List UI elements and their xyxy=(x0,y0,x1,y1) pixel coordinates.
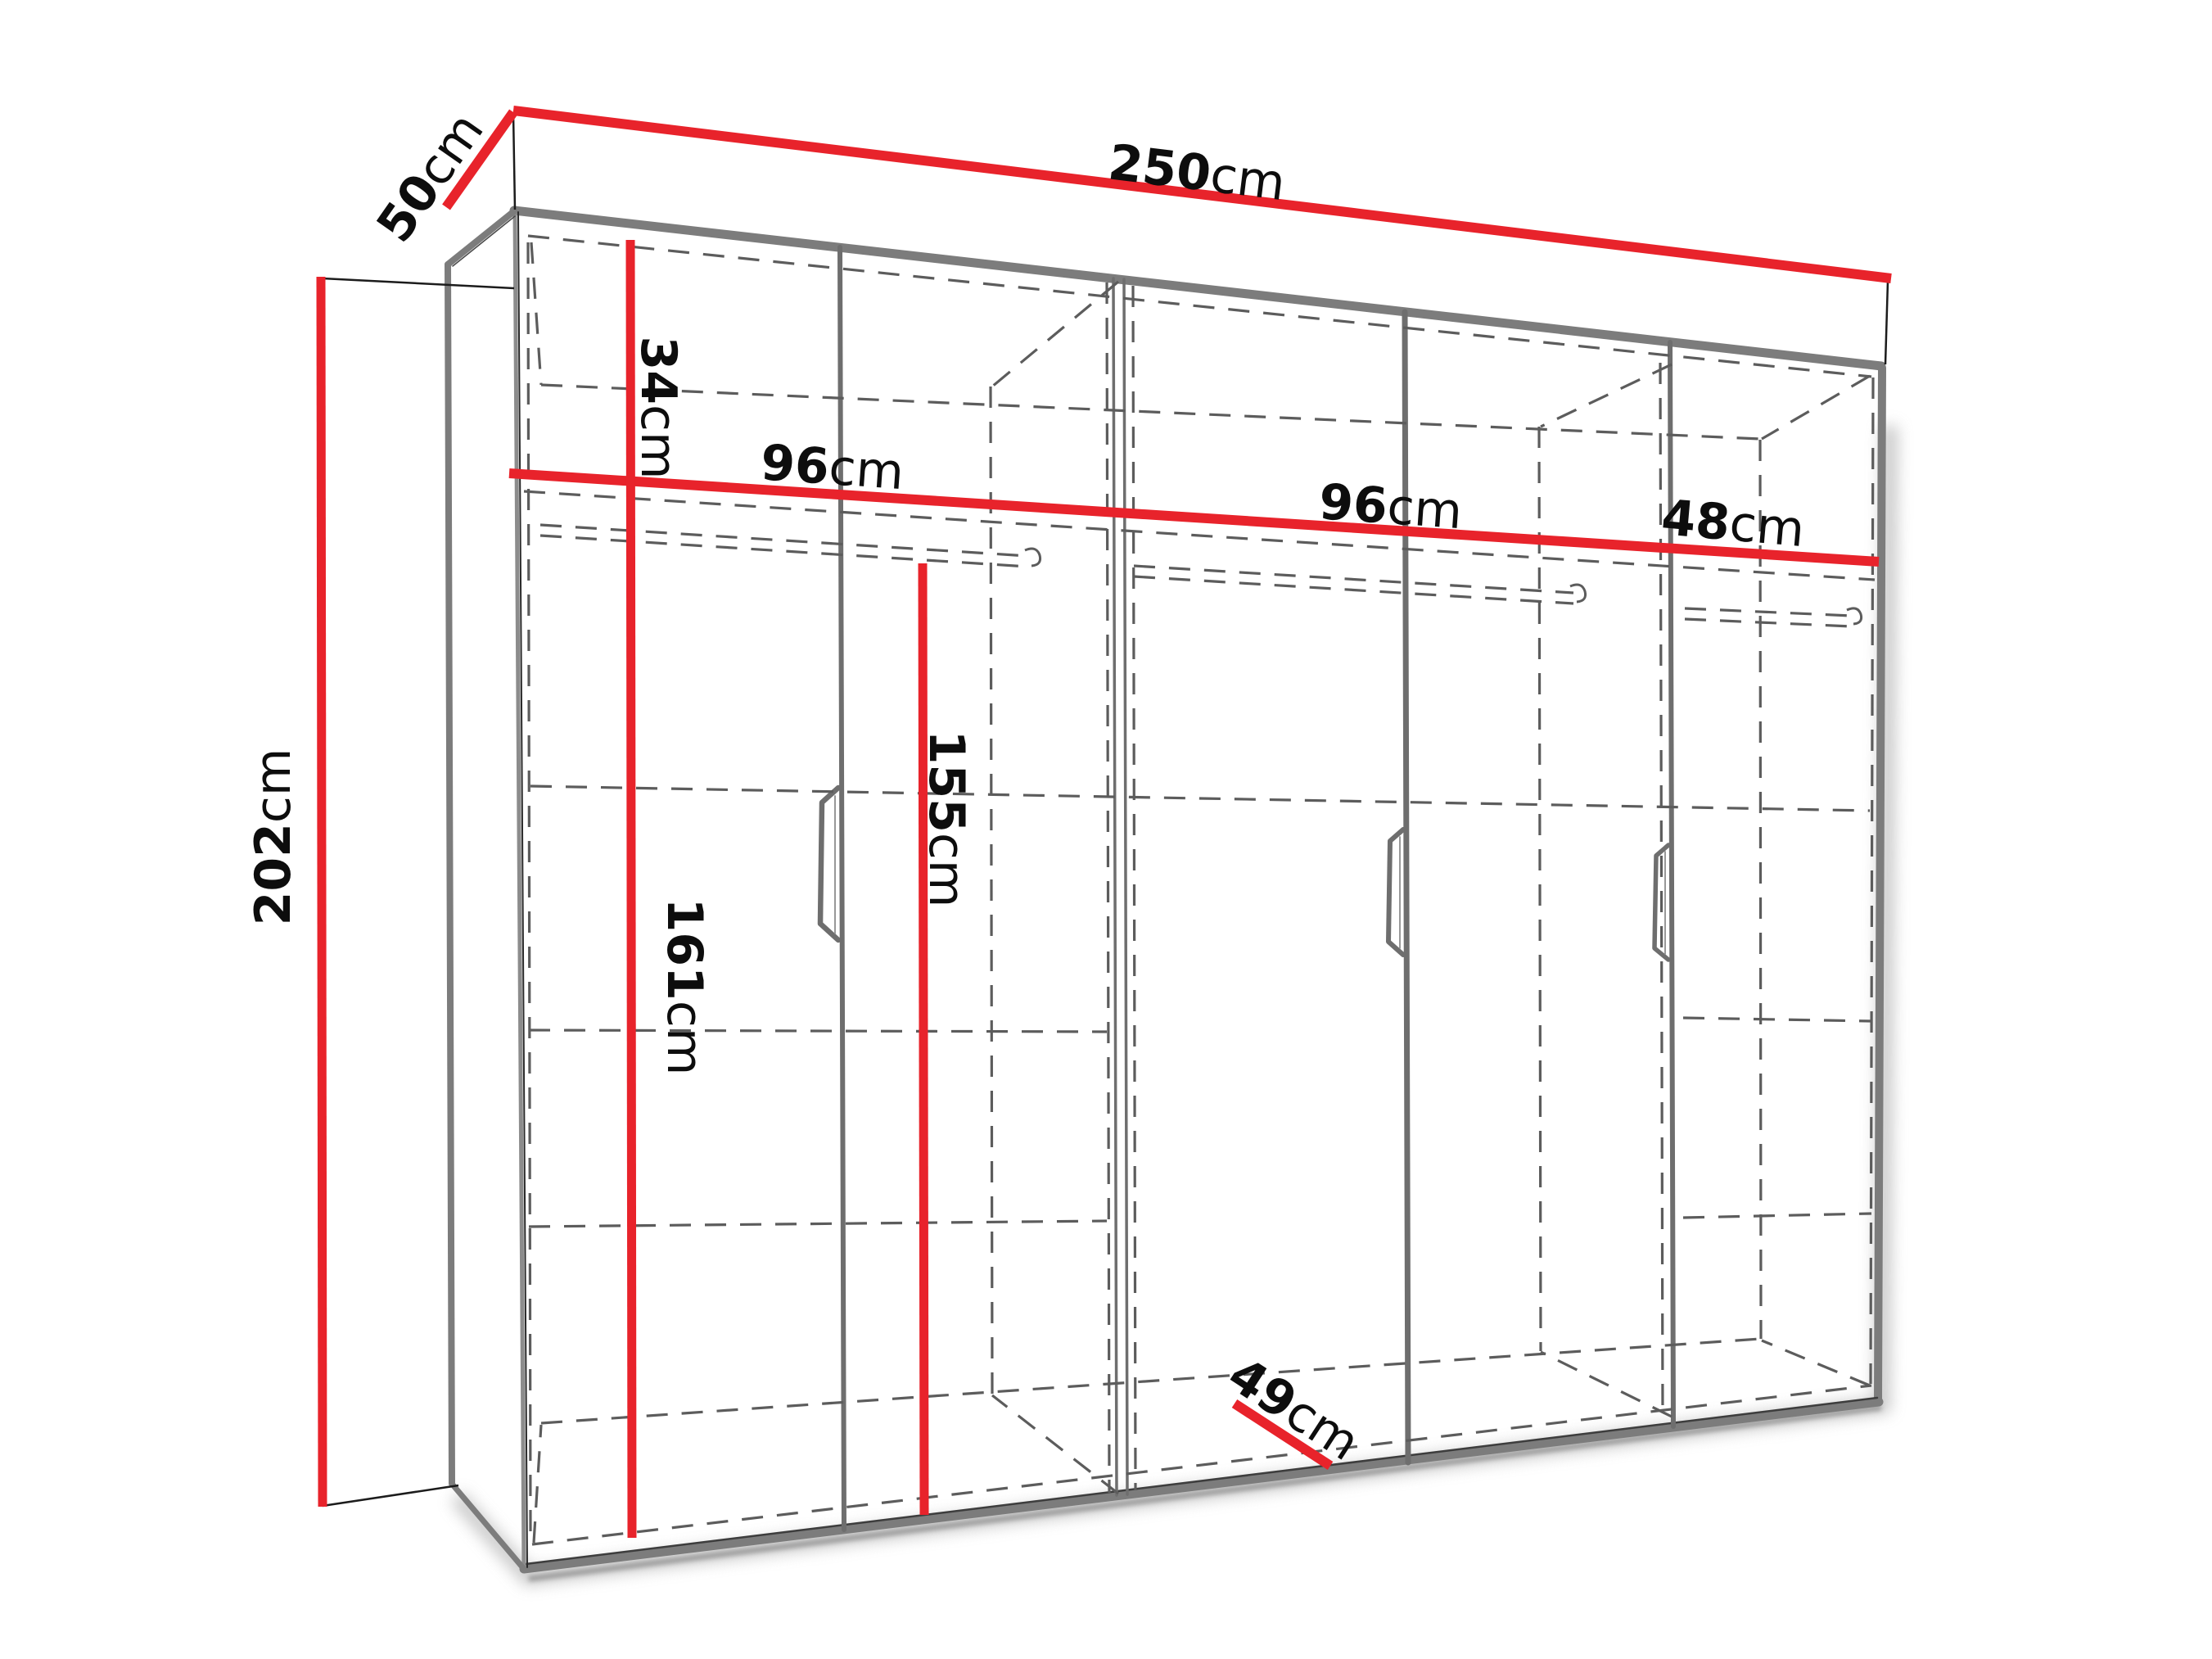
interior-back-right-corner xyxy=(1760,440,1761,1339)
label-interior-height: 161cm xyxy=(656,898,713,1076)
extension-height-bottom xyxy=(323,1485,458,1506)
side-panel-bottom-edge xyxy=(452,1484,524,1569)
rod-right-bottom xyxy=(1685,619,1852,626)
interior-ceiling-back xyxy=(541,385,1760,439)
dimension-line-155 xyxy=(923,563,924,1515)
label-depth: 50cm xyxy=(366,102,495,252)
extension-height-top xyxy=(323,278,514,288)
dimension-labels: 250cm 50cm 202cm 34cm 96cm 96cm 48cm 161… xyxy=(245,102,1807,1472)
left-shelf-2 xyxy=(529,1030,1107,1032)
door-divider-2a xyxy=(1113,278,1117,1495)
wardrobe-diagram: 250cm 50cm 202cm 34cm 96cm 96cm 48cm 161… xyxy=(0,0,2212,1659)
interior-back-partition-1 xyxy=(991,386,992,1394)
ceiling-diagonal-left xyxy=(531,242,541,385)
interior-mid-line xyxy=(530,786,1870,811)
label-height: 202cm xyxy=(245,748,302,926)
label-hanging-height: 155cm xyxy=(918,730,975,908)
label-top-section: 34cm xyxy=(630,337,687,480)
rod-bracket-left xyxy=(1025,549,1041,566)
interior-left-wall xyxy=(528,242,530,1531)
rod-brackets xyxy=(1025,549,1862,624)
rod-left-bottom xyxy=(540,536,1028,567)
door-divider-2b xyxy=(1124,279,1127,1494)
right-shelf-2 xyxy=(1683,1214,1871,1218)
floor-diagonal-right xyxy=(1762,1340,1870,1386)
ceiling-diagonal-right xyxy=(1762,376,1870,439)
ceiling-diagonal-partition2 xyxy=(1541,364,1672,427)
interior-right-wall xyxy=(1871,377,1873,1384)
right-shelf-1 xyxy=(1683,1018,1871,1021)
top-front-edge xyxy=(514,210,1881,366)
rod-bracket-right xyxy=(1847,608,1862,624)
side-panel-outer-edge xyxy=(448,264,452,1484)
floor-diagonal-partition2 xyxy=(1541,1352,1672,1417)
interior-floor-back xyxy=(541,1339,1760,1423)
label-shelf-left: 96cm xyxy=(759,434,905,501)
door-handle-middle xyxy=(1388,829,1403,955)
left-shelf-3 xyxy=(529,1221,1107,1227)
side-panel-top-edge-line xyxy=(453,216,515,266)
label-width: 250cm xyxy=(1105,133,1289,212)
extension-width-right xyxy=(1885,281,1888,364)
interior-partition-1-left xyxy=(1107,283,1109,1493)
rod-right-top xyxy=(1685,608,1852,616)
interior-back-partition-2 xyxy=(1539,427,1541,1351)
right-edge xyxy=(1878,368,1882,1402)
floor-diagonal-partition1 xyxy=(992,1395,1118,1494)
ceiling-diagonal-partition1 xyxy=(992,282,1118,386)
interior-partition-1-right xyxy=(1133,286,1135,1490)
floor-diagonal-left xyxy=(534,1425,541,1543)
side-panel-top-edge xyxy=(448,211,514,264)
label-shelf-middle: 96cm xyxy=(1317,473,1464,540)
dimension-line-height-202 xyxy=(321,277,323,1507)
diagram-canvas: 250cm 50cm 202cm 34cm 96cm 96cm 48cm 161… xyxy=(0,0,2212,1659)
extension-width-left xyxy=(513,114,515,210)
shadow-bottom xyxy=(529,1408,1881,1579)
